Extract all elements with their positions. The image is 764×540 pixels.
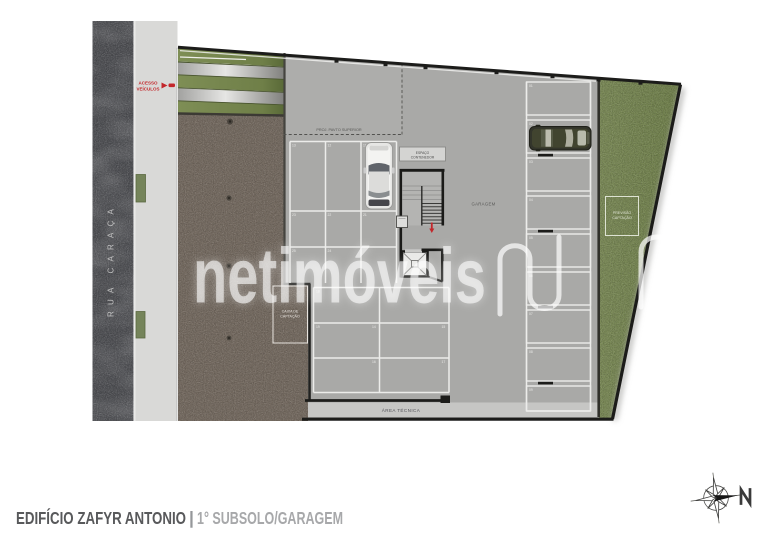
svg-text:CONTENEDOR: CONTENEDOR (411, 155, 435, 159)
svg-text:GARAGEM: GARAGEM (471, 202, 495, 207)
svg-text:ESPAÇO: ESPAÇO (416, 151, 430, 155)
svg-text:13: 13 (292, 144, 296, 148)
svg-text:08: 08 (529, 350, 533, 354)
svg-text:12: 12 (328, 144, 332, 148)
svg-text:EDIFÍCIO ZAFYR ANTONIO: EDIFÍCIO ZAFYR ANTONIO (16, 507, 186, 528)
svg-text:RUA CARAÇA: RUA CARAÇA (107, 203, 116, 317)
svg-text:netimóveis: netimóveis (193, 232, 486, 320)
svg-text:VEÍCULOS: VEÍCULOS (136, 85, 159, 92)
svg-text:01: 01 (529, 84, 533, 88)
svg-text:ACESSO: ACESSO (138, 81, 158, 86)
svg-text:15: 15 (442, 325, 446, 329)
svg-text:07: 07 (529, 312, 533, 316)
svg-text:22: 22 (328, 213, 332, 217)
svg-text:03: 03 (529, 160, 533, 164)
svg-text:02: 02 (529, 122, 533, 126)
svg-text:09: 09 (529, 388, 533, 392)
svg-text:19: 19 (316, 325, 320, 329)
svg-text:14: 14 (372, 325, 376, 329)
svg-text:05: 05 (529, 236, 533, 240)
svg-text:21: 21 (363, 213, 367, 217)
svg-text:17: 17 (442, 360, 446, 364)
svg-text:ÁREA TÉCNICA: ÁREA TÉCNICA (382, 407, 421, 413)
svg-text:1° SUBSOLO/GARAGEM: 1° SUBSOLO/GARAGEM (197, 508, 343, 528)
svg-text:|: | (189, 508, 194, 528)
svg-text:04: 04 (529, 198, 533, 202)
svg-text:CAPTAÇÃO: CAPTAÇÃO (612, 215, 632, 220)
svg-text:16: 16 (372, 360, 376, 364)
svg-text:23: 23 (292, 213, 296, 217)
svg-text:PREVISÃO: PREVISÃO (613, 210, 632, 215)
svg-text:PROJ. PAVTO SUPERIOR: PROJ. PAVTO SUPERIOR (316, 128, 362, 132)
